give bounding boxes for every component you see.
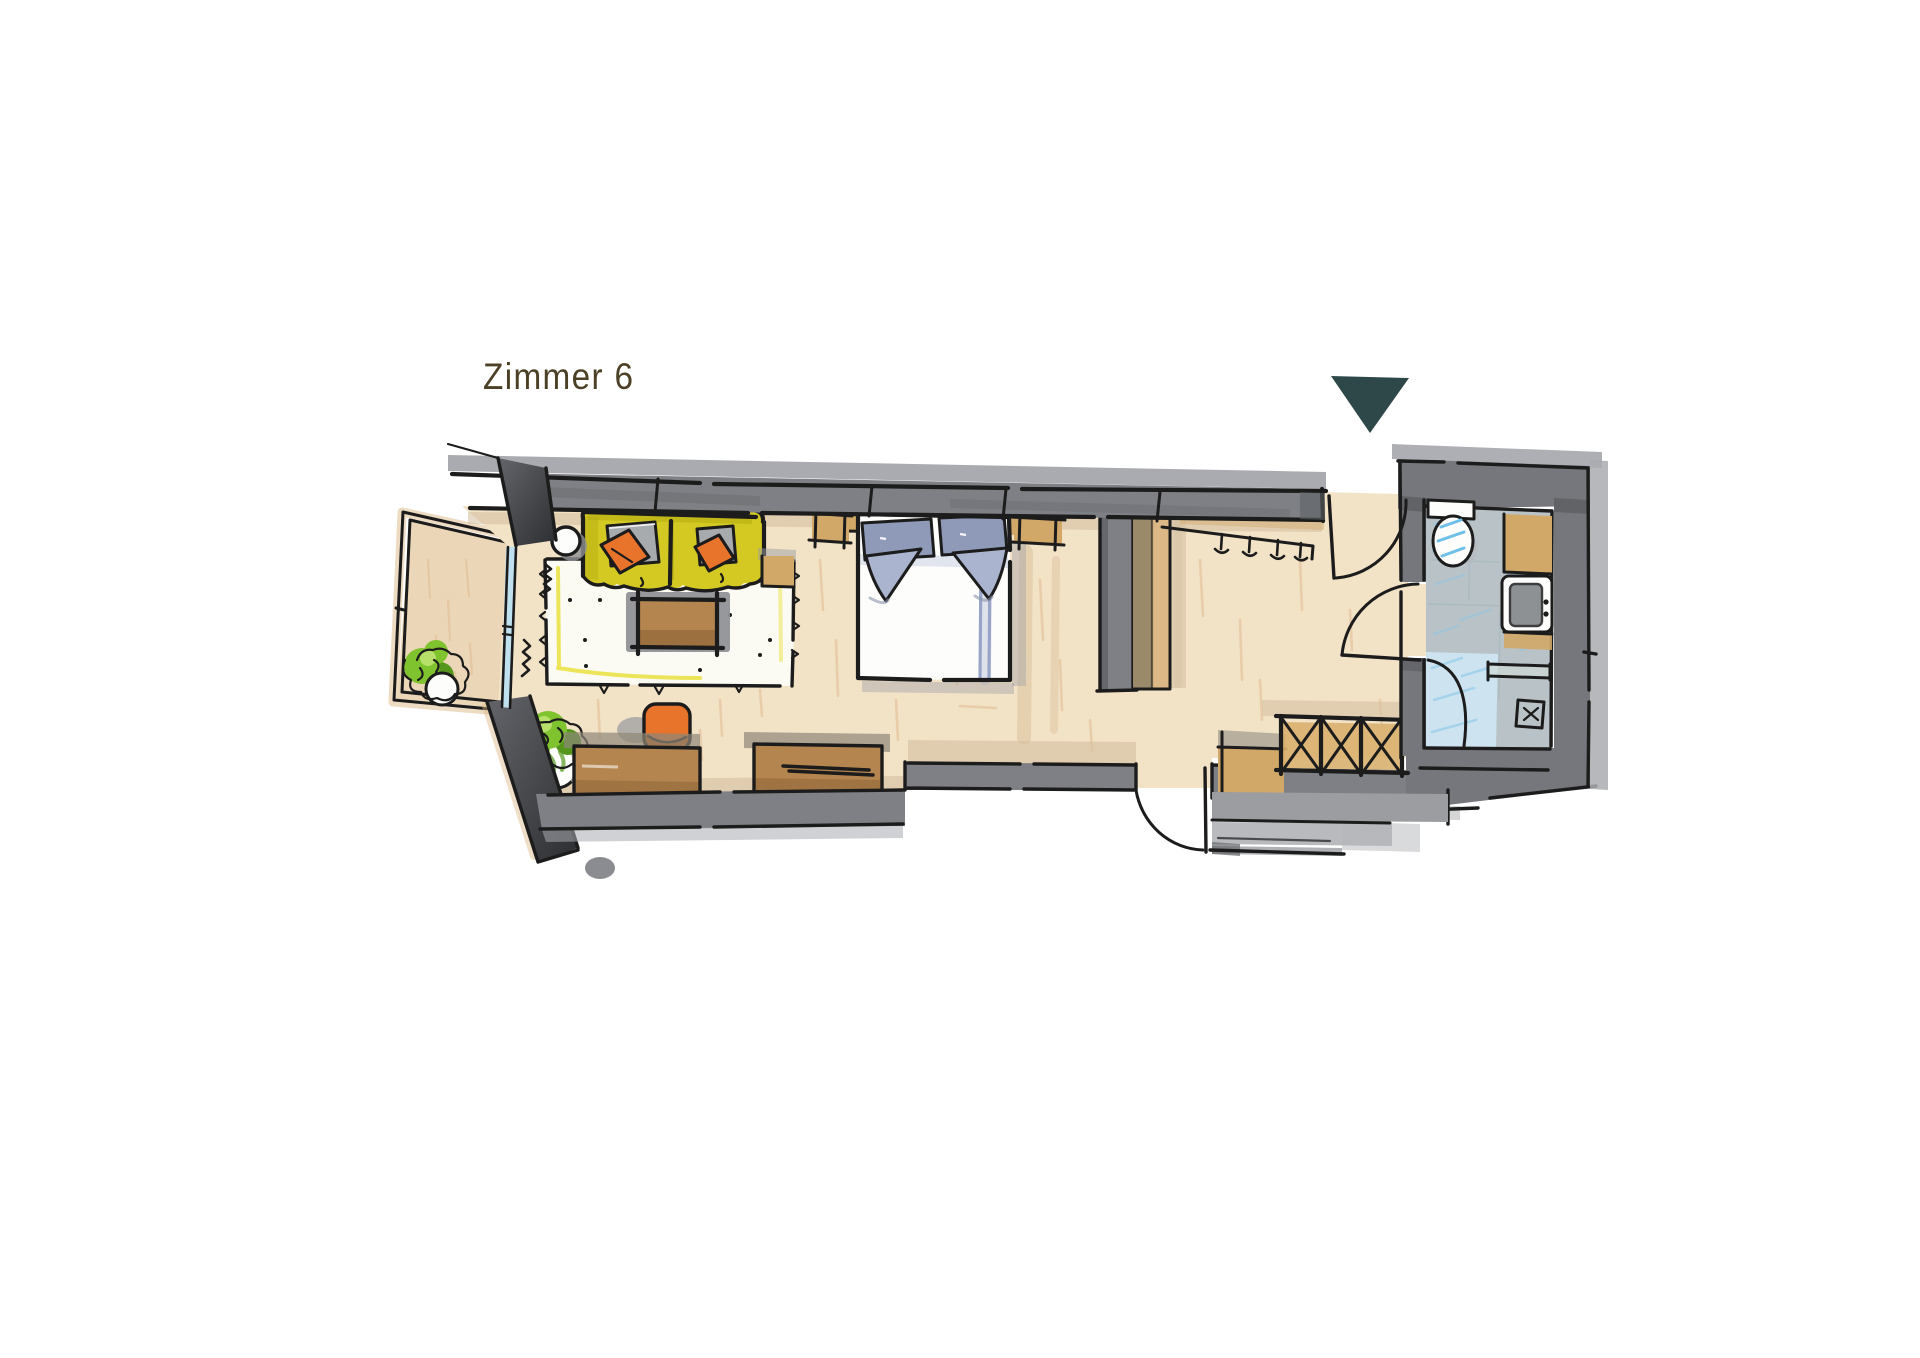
partition-wall bbox=[1097, 499, 1137, 691]
side-table-2 bbox=[758, 548, 796, 587]
coffee-table bbox=[626, 592, 730, 655]
sofa bbox=[582, 506, 764, 591]
toilet bbox=[1428, 500, 1477, 566]
vanity bbox=[1502, 514, 1552, 650]
luggage-rack bbox=[1276, 716, 1408, 776]
floor-plan bbox=[0, 0, 1920, 1358]
balcony bbox=[393, 512, 513, 711]
sideboard bbox=[564, 732, 700, 800]
wardrobe bbox=[1133, 507, 1170, 689]
towel-shelf bbox=[1488, 662, 1550, 680]
stairs bbox=[1210, 792, 1448, 856]
bed bbox=[846, 507, 1018, 694]
entrance-marker bbox=[1331, 376, 1409, 433]
media-sideboard bbox=[744, 732, 890, 798]
page: Zimmer 6 bbox=[0, 0, 1920, 1358]
bathroom bbox=[1392, 444, 1608, 790]
step-platform bbox=[1218, 730, 1286, 797]
